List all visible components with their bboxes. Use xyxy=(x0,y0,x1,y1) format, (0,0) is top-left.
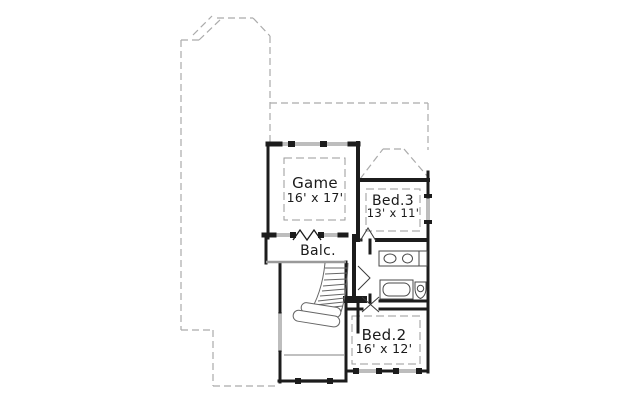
bathtub-basin xyxy=(383,283,410,296)
stairs xyxy=(292,263,348,328)
sink-left-icon xyxy=(384,254,396,263)
sink-right-icon xyxy=(403,254,413,263)
cased-opening-zigzag xyxy=(293,230,321,240)
bathroom-fixtures xyxy=(379,251,427,299)
room-dims-game: 16' x 17' xyxy=(287,190,344,205)
room-dims-bed2: 16' x 12' xyxy=(356,341,413,356)
bath-door-swing xyxy=(358,266,370,290)
floor-plan-drawing: Game 16' x 17' Bed.3 13' x 11' Balc. Bed… xyxy=(0,0,620,415)
stair-landing-wall xyxy=(343,296,367,303)
floor-plan-canvas: Game 16' x 17' Bed.3 13' x 11' Balc. Bed… xyxy=(0,0,620,415)
room-label-balcony: Balc. xyxy=(300,243,336,259)
room-dims-bed3: 13' x 11' xyxy=(367,206,419,220)
